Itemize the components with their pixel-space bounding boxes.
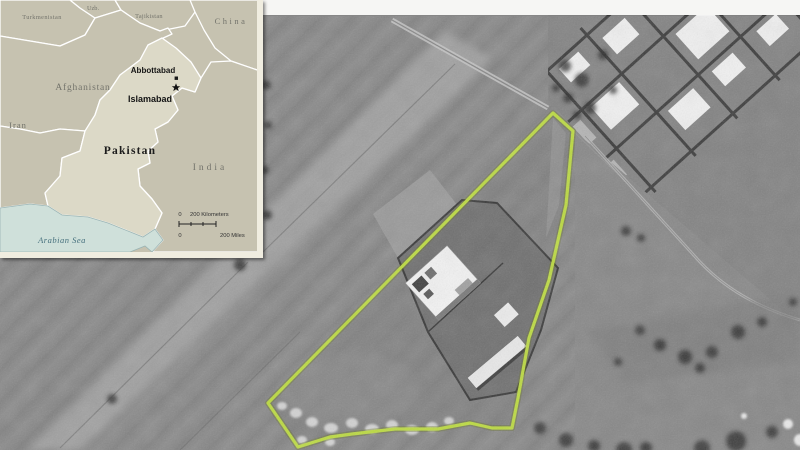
label-india: India <box>193 163 228 173</box>
label-tajikistan: Tajikistan <box>135 13 163 20</box>
label-islamabad: Islamabad <box>128 94 172 104</box>
scale-mi-label: 200 Miles <box>220 233 245 239</box>
label-china: China <box>215 16 248 26</box>
label-pakistan: Pakistan <box>104 145 156 157</box>
label-iran: Iran <box>9 120 27 130</box>
label-uzbekistan: Uzb. <box>87 5 99 12</box>
label-abbottabad: Abbottabad <box>131 66 176 75</box>
inset-map: Turkmenistan Uzb. Tajikistan China Afgha… <box>0 0 263 258</box>
scale-km-label: 200 Kilometers <box>190 212 229 218</box>
label-afghanistan: Afghanistan <box>55 82 110 93</box>
label-arabian-sea: Arabian Sea <box>37 235 86 245</box>
scale-km-zero: 0 <box>178 212 181 218</box>
scale-mi-zero: 0 <box>178 233 181 239</box>
white-border-strip <box>252 0 800 15</box>
inset-map-svg: Turkmenistan Uzb. Tajikistan China Afgha… <box>0 0 263 258</box>
abbottabad-compound-graphic: Turkmenistan Uzb. Tajikistan China Afgha… <box>0 0 800 450</box>
label-turkmenistan: Turkmenistan <box>22 14 62 21</box>
abbottabad-square-dot-icon <box>175 77 178 80</box>
